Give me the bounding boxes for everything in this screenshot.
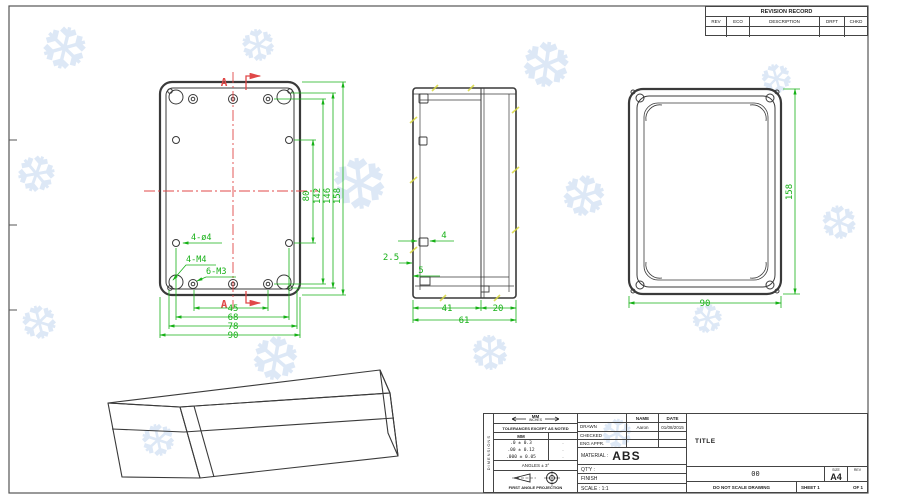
- revision-empty-cell: [706, 27, 726, 37]
- drawing-sheet: ❆ ❆ ❆ ❆ ❆ ❆ ❆ ❆ ❆ ❆ ❆ ❆ ❆ ❆: [0, 0, 900, 500]
- dim-80: 80: [302, 191, 312, 202]
- first-angle-target-icon: [544, 471, 560, 486]
- tolerance-header: MM: [494, 433, 548, 440]
- dim-142: 142: [313, 188, 323, 204]
- rev-cell: REV: [847, 466, 867, 481]
- revision-col-eco: ECO: [726, 17, 749, 27]
- label-6-m3: 6-M3: [206, 267, 226, 277]
- material-label: MATERIAL :: [581, 453, 608, 459]
- side-view: [410, 85, 519, 301]
- qty-cell: QT'Y :: [577, 464, 686, 473]
- dim-tab-4: 4: [441, 231, 446, 241]
- revision-col-rev: REV: [706, 17, 726, 27]
- scale-cell: SCALE : 1:1: [577, 483, 686, 492]
- dim-61: 61: [459, 316, 470, 326]
- tolerance-mark: ·: [548, 440, 577, 447]
- size-value: A4: [825, 472, 847, 481]
- title-block: DIMENSIONS MM INCHES TOLERANCES EXCEPT A…: [483, 413, 868, 493]
- eng-appr-label: ENG APPR.: [577, 439, 626, 447]
- tolerance-note: TOLERANCES EXCEPT AS NOTED: [494, 424, 577, 433]
- tolerance-header-blank: [548, 433, 577, 440]
- sheet-of-label: OF 1: [853, 485, 863, 490]
- finish-cell: FINISH: [577, 473, 686, 483]
- title-cell: TITLE: [686, 414, 867, 466]
- tolerance-mark: ·: [548, 454, 577, 461]
- revision-empty-cell: [819, 27, 844, 37]
- drawn-date: 01/08/2015: [658, 422, 686, 431]
- material-cell: MATERIAL : ABS: [577, 447, 686, 464]
- seam-ticks: [410, 85, 519, 301]
- projection-cell: FIRST ANGLE PROJECTION: [494, 471, 577, 492]
- dim-158: 158: [333, 188, 343, 204]
- checked-name: [626, 431, 658, 439]
- drawing-number: 00: [686, 466, 824, 481]
- units-strip-label: DIMENSIONS: [486, 435, 491, 470]
- revision-table-title: REVISION RECORD: [706, 7, 867, 17]
- front-view: [160, 82, 300, 295]
- checked-date: [658, 431, 686, 439]
- eng-appr-name: [626, 439, 658, 447]
- isometric-view: [108, 370, 398, 478]
- section-label-top: A: [221, 76, 228, 89]
- dia4-holes: [173, 137, 293, 247]
- centerlines: [144, 72, 318, 309]
- header-blank: [577, 414, 626, 422]
- dimension-arrow-icon: [512, 416, 526, 422]
- dim-158-back: 158: [785, 184, 795, 200]
- units-strip: DIMENSIONS: [484, 414, 494, 492]
- back-dimensions: [629, 89, 800, 308]
- dim-20: 20: [493, 304, 504, 314]
- dim-41: 41: [442, 304, 453, 314]
- eng-appr-date: [658, 439, 686, 447]
- revision-empty-cell: [749, 27, 819, 37]
- size-cell: SIZE A4: [824, 466, 847, 481]
- front-dimensions: [160, 82, 346, 338]
- col-date-header: DATE: [658, 414, 686, 422]
- checked-label: CHECKED: [577, 431, 626, 439]
- units-row: MM INCHES: [494, 414, 577, 424]
- first-angle-cone-icon: [512, 472, 536, 484]
- projection-label: FIRST ANGLE PROJECTION: [494, 484, 577, 491]
- drawn-name: Aaron: [626, 422, 658, 431]
- sheet-label: SHEET 1: [801, 485, 820, 490]
- angles-tolerance: ANGLES ± 3°: [494, 461, 577, 471]
- label-4-dia4: 4-ø4: [191, 233, 211, 243]
- dimension-arrow-icon: [545, 416, 559, 422]
- tolerance-mark: ·: [548, 447, 577, 454]
- label-4-m4: 4-M4: [186, 255, 206, 265]
- col-name-header: NAME: [626, 414, 658, 422]
- tolerance-row: .00 ± 0.12: [494, 447, 548, 454]
- revision-col-chkd: CHKD: [844, 17, 867, 27]
- drawn-label: DRAWN: [577, 422, 626, 431]
- revision-empty-cell: [844, 27, 867, 37]
- units-inches-label: INCHES: [529, 419, 542, 423]
- corner-screws: [631, 90, 779, 293]
- rev-label: REV: [848, 467, 867, 472]
- tolerance-row: .000 ± 0.05: [494, 454, 548, 461]
- do-not-scale-note: DO NOT SCALE DRAWING: [686, 481, 796, 492]
- back-view: [629, 89, 781, 294]
- dim-wall-2-5: 2.5: [383, 253, 399, 263]
- dim-lip-5: 5: [418, 266, 423, 276]
- revision-col-description: DESCRIPTION: [749, 17, 819, 27]
- revision-empty-cell: [726, 27, 749, 37]
- revision-table: REVISION RECORD REV ECO DESCRIPTION DRFT…: [705, 6, 868, 36]
- dim-90-back: 90: [700, 299, 711, 309]
- material-value: ABS: [612, 449, 640, 463]
- sheet-cell: SHEET 1 OF 1: [796, 481, 867, 492]
- dim-90-front: 90: [228, 331, 239, 341]
- revision-col-drft: DRFT: [819, 17, 844, 27]
- tolerance-row: .0 ± 0.3: [494, 440, 548, 447]
- dim-146: 146: [323, 188, 333, 204]
